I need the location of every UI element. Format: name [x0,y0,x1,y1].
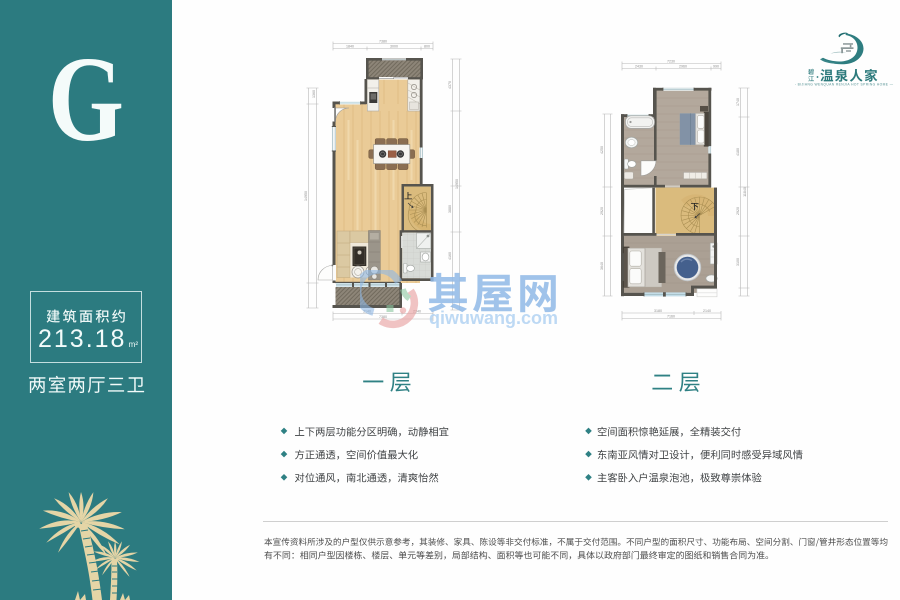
svg-text:qiwuwang.com: qiwuwang.com [429,308,558,328]
svg-text:2920: 2920 [600,207,604,215]
svg-text:3180: 3180 [654,309,662,313]
svg-text:7380: 7380 [379,39,387,43]
svg-text:7230: 7230 [667,59,675,63]
svg-text:800: 800 [424,44,430,48]
svg-text:11840: 11840 [743,187,747,197]
svg-text:3000: 3000 [390,44,398,48]
svg-text:7160: 7160 [667,314,675,318]
svg-text:3640: 3640 [600,262,604,270]
svg-text:1740: 1740 [736,98,740,106]
svg-text:1840: 1840 [346,44,354,48]
svg-text:990: 990 [713,64,719,68]
svg-text:1360: 1360 [312,90,316,98]
svg-text:4160: 4160 [448,252,452,260]
svg-text:3100: 3100 [736,258,740,266]
svg-text:4370: 4370 [448,81,452,89]
svg-text:2140: 2140 [703,309,711,313]
svg-text:— BIJIANG WENQUAN RENJIA HOT S: — BIJIANG WENQUAN RENJIA HOT SPRING HOME… [795,83,894,87]
svg-text:2430: 2430 [635,64,643,68]
svg-text:14950: 14950 [304,191,308,201]
svg-text:2960: 2960 [679,64,687,68]
svg-text:4250: 4250 [600,146,604,154]
svg-text:3880: 3880 [448,205,452,213]
svg-text:14950: 14950 [455,179,459,189]
svg-text:4180: 4180 [736,148,740,156]
svg-text:2920: 2920 [736,207,740,215]
